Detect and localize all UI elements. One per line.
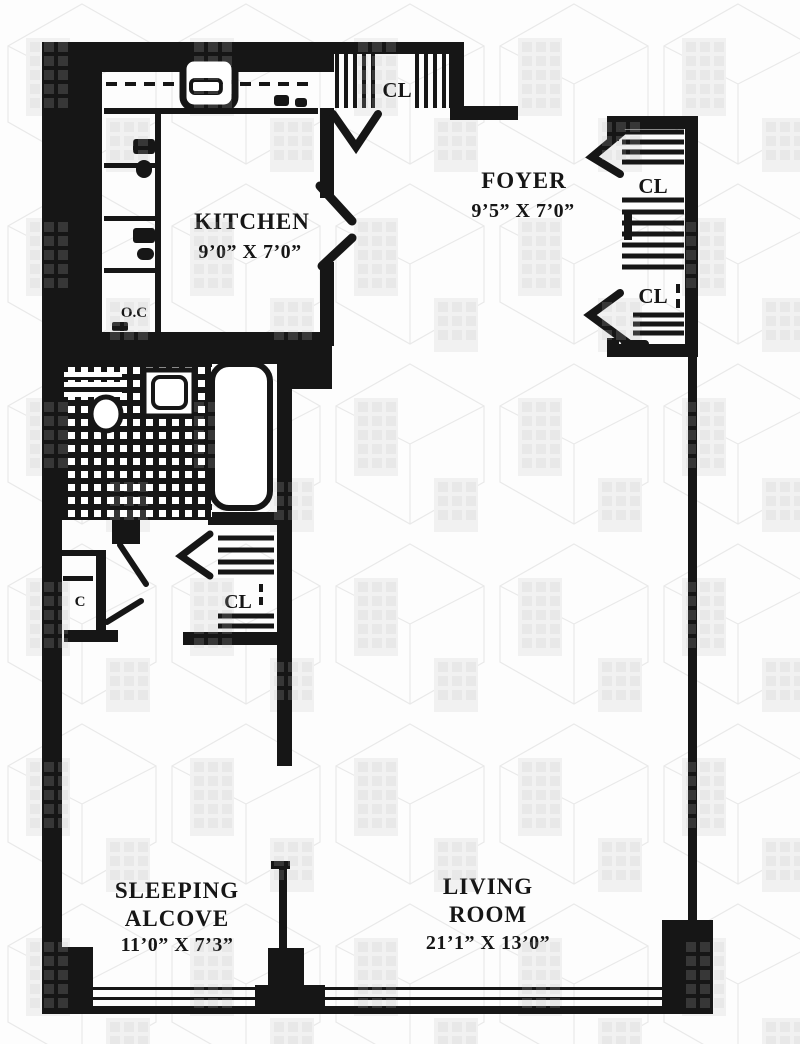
sleeping-alcove-label-line1: SLEEPING: [115, 878, 239, 903]
kitchen-sink-icon: [183, 58, 235, 108]
bathroom: [62, 364, 270, 520]
living-room-dims: 21’1” X 13’0”: [426, 932, 550, 954]
linen-closet-label: C: [75, 594, 86, 610]
bathroom-sink-icon: [91, 397, 121, 431]
floor-plan-page: CL CL CL: [0, 0, 800, 1044]
foyer-closet-upper-label: CL: [638, 174, 667, 198]
foyer-dims: 9’5” X 7’0”: [471, 200, 574, 222]
kitchen-dims: 9’0” X 7’0”: [198, 241, 301, 263]
kitchen-label: KITCHEN: [194, 209, 310, 234]
sleeping-alcove-dims: 11’0” X 7’3”: [121, 934, 234, 956]
foyer-closet-lower-label: CL: [638, 284, 667, 308]
entry-closet-label: CL: [382, 78, 411, 102]
hall-closet-label: CL: [224, 591, 252, 613]
sleeping-alcove-label-line2: ALCOVE: [125, 906, 229, 931]
bathtub-icon: [212, 364, 270, 508]
counter-appliance-label: O.C: [121, 305, 147, 321]
toilet-icon: [144, 370, 194, 416]
floor-plan-svg: CL CL CL: [0, 0, 800, 1044]
foyer-label: FOYER: [481, 168, 567, 193]
living-room-label-line1: LIVING: [443, 874, 533, 899]
living-room-label-line2: ROOM: [449, 902, 527, 927]
